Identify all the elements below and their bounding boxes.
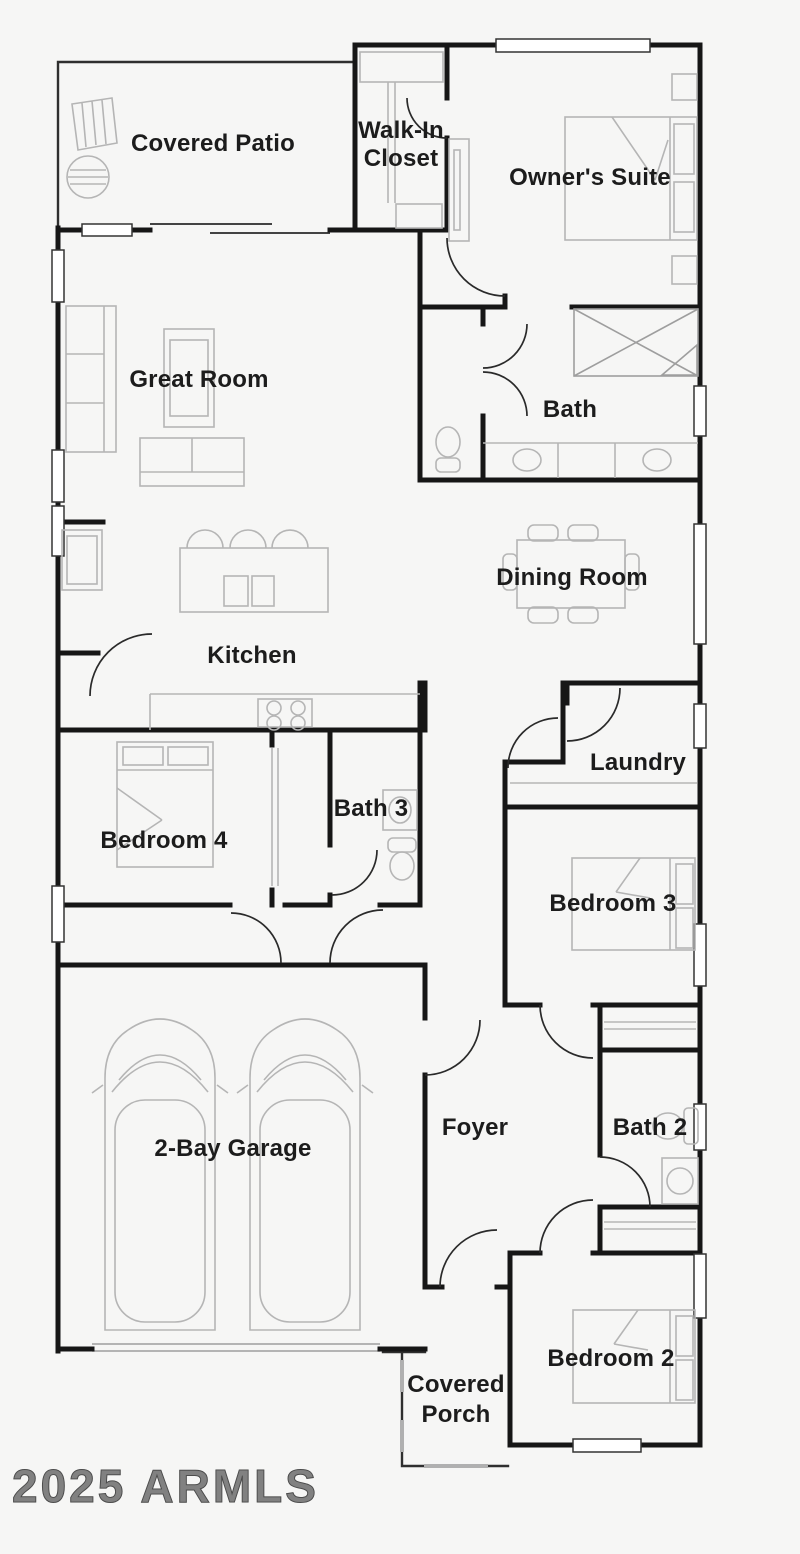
label-dining-room: Dining Room [496,564,648,591]
label-covered-porch-line1: Covered [407,1371,504,1398]
label-owners-suite: Owner's Suite [509,164,671,191]
label-bath-2: Bath 2 [613,1114,688,1141]
floorplan-page: Covered Patio Walk-In Closet Owner's Sui… [0,0,800,1554]
label-walk-in-closet-line2: Closet [364,145,439,172]
label-walk-in-closet-line1: Walk-In [358,117,444,144]
label-kitchen: Kitchen [207,642,296,669]
label-laundry: Laundry [590,749,687,776]
label-covered-patio: Covered Patio [131,130,295,157]
label-covered-porch-line2: Porch [421,1401,490,1428]
label-great-room: Great Room [129,366,268,393]
label-bath-3: Bath 3 [334,795,409,822]
floorplan-canvas: Covered Patio Walk-In Closet Owner's Sui… [0,0,800,1554]
label-two-bay-garage: 2-Bay Garage [154,1135,311,1162]
armls-watermark: 2025 ARMLS [12,1460,319,1512]
label-bath: Bath [543,396,597,423]
label-bedroom-2: Bedroom 2 [547,1345,674,1372]
label-bedroom-3: Bedroom 3 [549,890,676,917]
label-bedroom-4: Bedroom 4 [100,827,228,854]
label-foyer: Foyer [442,1114,508,1141]
